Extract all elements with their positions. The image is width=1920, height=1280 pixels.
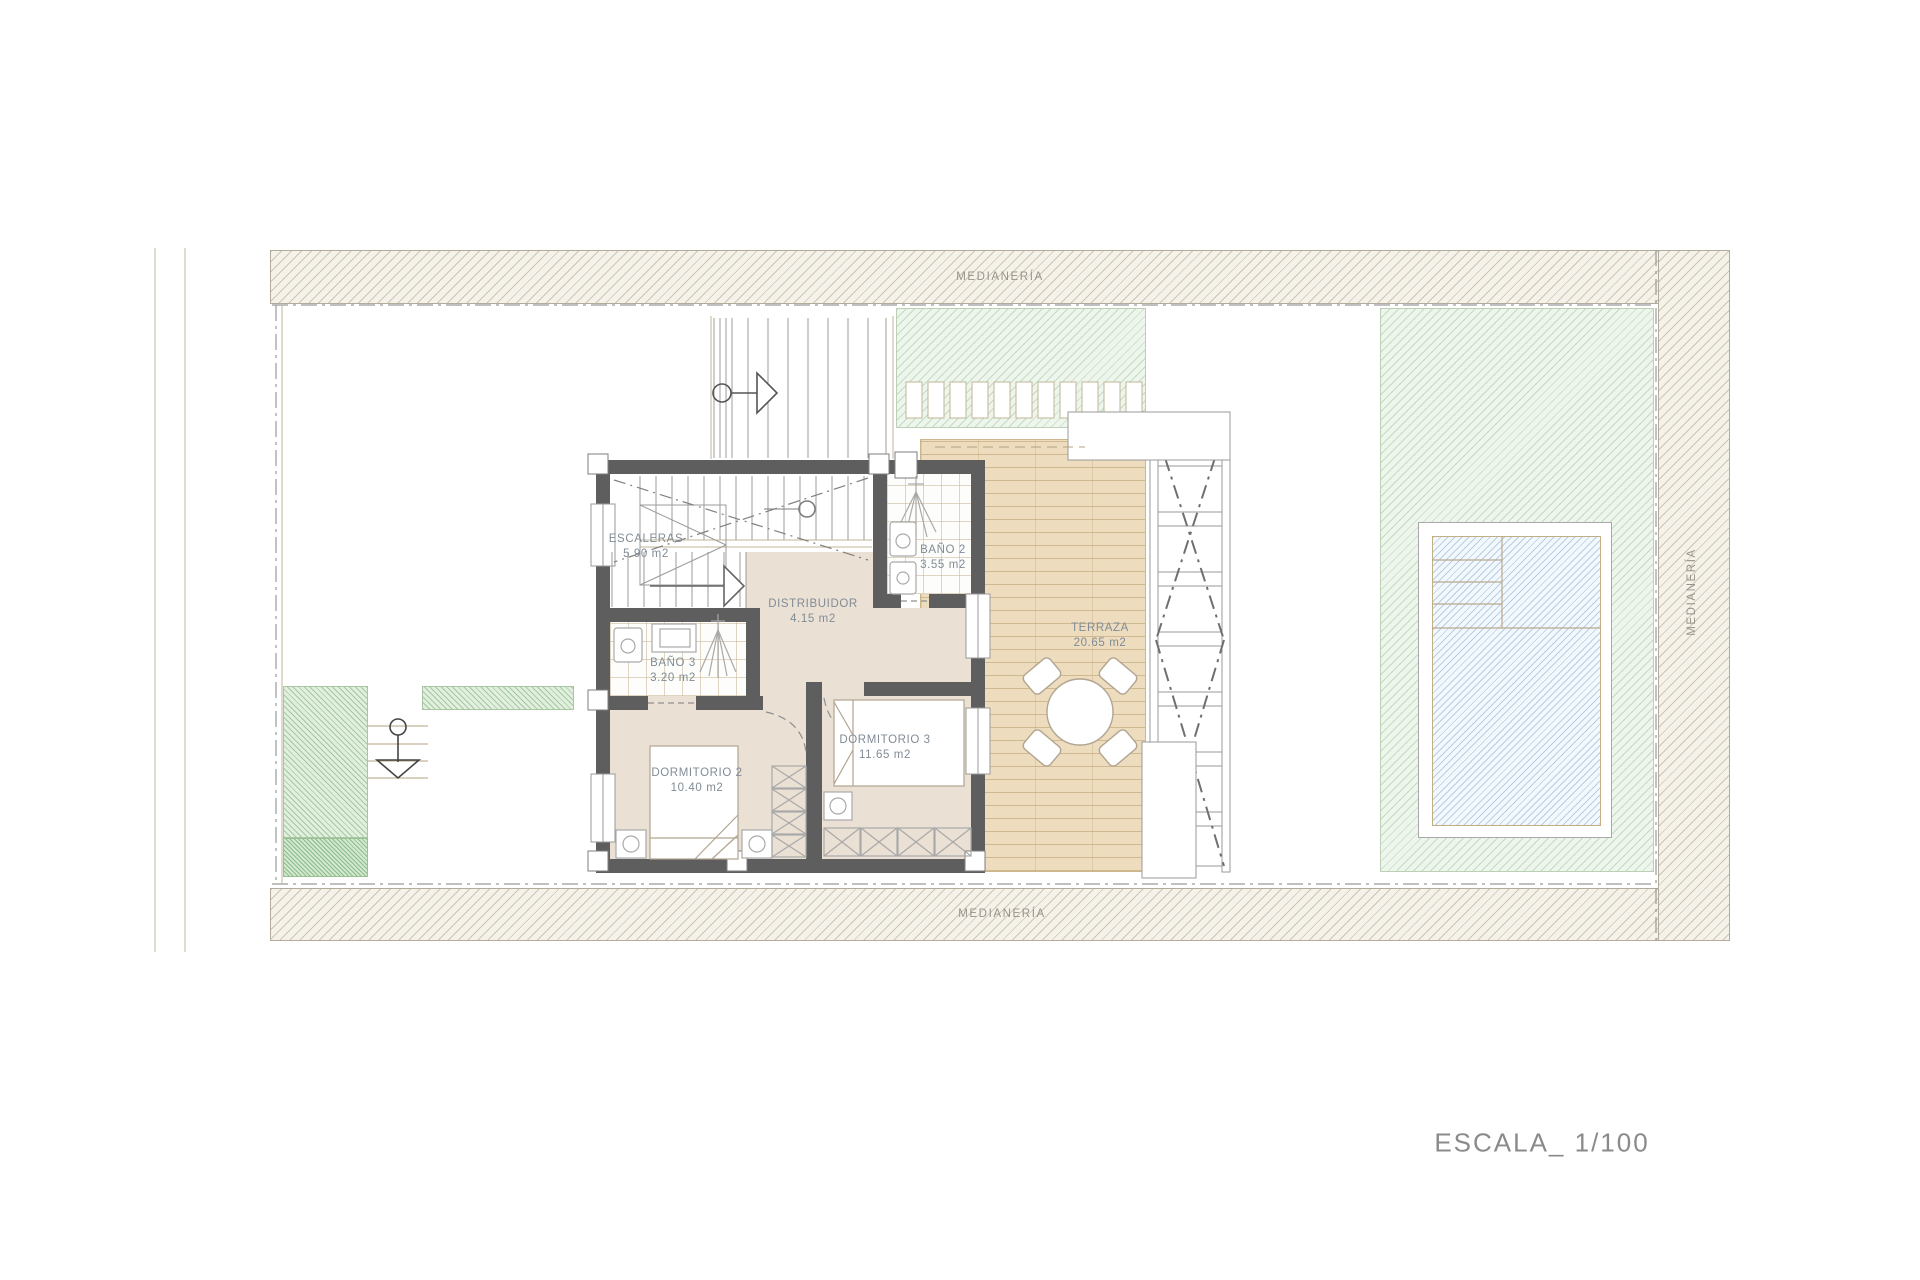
- bedroom3-furniture: [824, 700, 971, 856]
- entry-direction-arrow-icon: [713, 373, 777, 413]
- boundary-label-right: MEDIANERÍA: [1686, 548, 1698, 636]
- room-name: BAÑO 2: [920, 543, 966, 558]
- room-name: DORMITORIO 2: [651, 766, 742, 781]
- room-area: 5.90 m2: [609, 547, 683, 562]
- room-area: 10.40 m2: [651, 781, 742, 796]
- wardrobe-bedroom3: [824, 828, 971, 856]
- room-label-bano3: BAÑO 3 3.20 m2: [650, 656, 696, 686]
- pergola-landing: [1068, 412, 1230, 460]
- wall-posts: [588, 452, 985, 871]
- boundary-label-bottom: MEDIANERÍA: [958, 908, 1046, 920]
- street-edge-lines: [155, 248, 185, 952]
- scale-label: ESCALA_ 1/100: [1434, 1128, 1649, 1159]
- bedroom2-furniture: [616, 746, 806, 859]
- wardrobe-bedroom2: [772, 766, 806, 857]
- room-label-terraza: TERRAZA 20.65 m2: [1071, 621, 1129, 651]
- bathroom2-fixtures: [890, 476, 936, 594]
- floor-plan-canvas: ESCALERAS 5.90 m2 BAÑO 2 3.55 m2 BAÑO 3 …: [0, 0, 1920, 1280]
- room-label-dormitorio3: DORMITORIO 3 11.65 m2: [839, 733, 930, 763]
- room-area: 4.15 m2: [768, 612, 858, 627]
- shower-icon-2: [700, 630, 736, 678]
- room-area: 20.65 m2: [1071, 636, 1129, 651]
- boundary-label-top: MEDIANERÍA: [956, 271, 1044, 283]
- room-label-escaleras: ESCALERAS 5.90 m2: [609, 532, 683, 562]
- room-name: DISTRIBUIDOR: [768, 597, 858, 612]
- room-label-distribuidor: DISTRIBUIDOR 4.15 m2: [768, 597, 858, 627]
- room-name: DORMITORIO 3: [839, 733, 930, 748]
- room-label-dormitorio2: DORMITORIO 2 10.40 m2: [651, 766, 742, 796]
- entry-steps-arrow-icon: [377, 719, 419, 778]
- plan-linework: [0, 0, 1920, 1280]
- entry-stair-top: [711, 316, 893, 459]
- room-area: 3.55 m2: [920, 558, 966, 573]
- room-label-bano2: BAÑO 2 3.55 m2: [920, 543, 966, 573]
- room-name: TERRAZA: [1071, 621, 1129, 636]
- room-area: 3.20 m2: [650, 671, 696, 686]
- room-name: BAÑO 3: [650, 656, 696, 671]
- terrace-table-chairs: [1021, 656, 1138, 768]
- outdoor-kitchen: [1142, 742, 1196, 878]
- room-name: ESCALERAS: [609, 532, 683, 547]
- room-area: 11.65 m2: [839, 748, 930, 763]
- pool-steps: [1432, 536, 1601, 628]
